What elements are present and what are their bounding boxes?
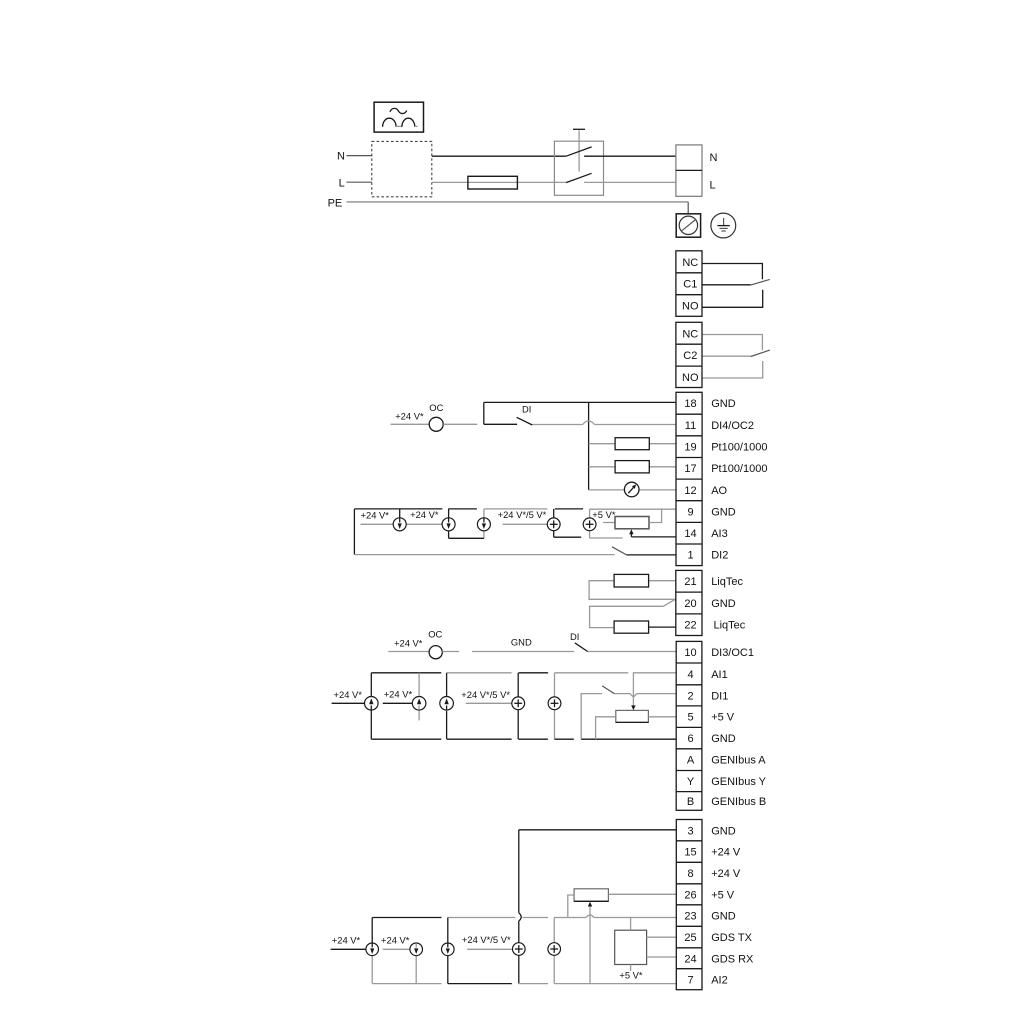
svg-text:22: 22 <box>684 620 696 632</box>
svg-text:Pt100/1000: Pt100/1000 <box>711 442 767 454</box>
svg-text:L: L <box>710 180 716 192</box>
svg-text:GND: GND <box>711 825 736 837</box>
svg-text:+5 V: +5 V <box>711 712 735 724</box>
svg-text:12: 12 <box>684 485 696 497</box>
svg-text:DI2: DI2 <box>711 550 728 562</box>
svg-text:25: 25 <box>684 932 696 944</box>
svg-text:DI: DI <box>522 403 531 414</box>
svg-text:+24 V*/5 V*: +24 V*/5 V* <box>498 509 547 520</box>
svg-text:24: 24 <box>684 953 696 965</box>
svg-text:Y: Y <box>687 776 695 788</box>
svg-text:DI4/OC2: DI4/OC2 <box>711 420 754 432</box>
svg-text:N: N <box>337 150 345 162</box>
svg-text:14: 14 <box>684 528 696 540</box>
svg-text:+24 V*: +24 V* <box>395 410 424 421</box>
svg-text:B: B <box>687 796 694 808</box>
svg-text:+24 V: +24 V <box>711 847 741 859</box>
svg-text:23: 23 <box>684 911 696 923</box>
svg-text:A: A <box>687 755 695 767</box>
svg-text:2: 2 <box>687 690 693 702</box>
svg-text:15: 15 <box>684 847 696 859</box>
svg-text:Pt100/1000: Pt100/1000 <box>711 463 767 475</box>
svg-text:GDS RX: GDS RX <box>711 953 754 965</box>
svg-text:19: 19 <box>684 442 696 454</box>
svg-text:+24 V: +24 V <box>711 868 741 880</box>
svg-text:L: L <box>339 177 345 189</box>
svg-text:+24 V*/5 V*: +24 V*/5 V* <box>461 689 510 700</box>
svg-text:26: 26 <box>684 889 696 901</box>
svg-text:+24 V*: +24 V* <box>381 935 410 946</box>
svg-text:+5 V: +5 V <box>711 889 735 901</box>
svg-text:+5 V*: +5 V* <box>592 509 616 520</box>
svg-text:18: 18 <box>684 398 696 410</box>
svg-text:GDS TX: GDS TX <box>711 932 752 944</box>
svg-text:6: 6 <box>687 733 693 745</box>
svg-text:17: 17 <box>684 463 696 475</box>
svg-text:+24 V*: +24 V* <box>384 688 413 699</box>
svg-text:AI1: AI1 <box>711 669 728 681</box>
svg-text:DI3/OC1: DI3/OC1 <box>711 647 754 659</box>
svg-text:8: 8 <box>687 868 693 880</box>
svg-text:NO: NO <box>682 301 699 313</box>
svg-text:+24 V*: +24 V* <box>334 689 363 700</box>
svg-text:NO: NO <box>682 372 699 384</box>
svg-text:GENIbus B: GENIbus B <box>711 796 766 808</box>
svg-text:AO: AO <box>711 485 727 497</box>
svg-text:AI3: AI3 <box>711 528 728 540</box>
svg-text:GND: GND <box>711 911 736 923</box>
svg-text:GND: GND <box>511 637 532 648</box>
svg-text:+24 V*/5 V*: +24 V*/5 V* <box>462 934 511 945</box>
svg-text:GND: GND <box>711 398 736 410</box>
svg-text:GND: GND <box>711 733 736 745</box>
svg-text:C1: C1 <box>683 279 697 291</box>
svg-text:+24 V*: +24 V* <box>394 637 423 648</box>
svg-text:4: 4 <box>687 669 693 681</box>
svg-text:DI: DI <box>570 631 579 642</box>
svg-text:LiqTec: LiqTec <box>714 620 746 632</box>
svg-text:N: N <box>710 152 718 164</box>
svg-text:AI2: AI2 <box>711 974 728 986</box>
svg-text:9: 9 <box>687 507 693 519</box>
svg-text:GENIbus A: GENIbus A <box>711 755 766 767</box>
svg-text:3: 3 <box>687 825 693 837</box>
svg-text:5: 5 <box>687 712 693 724</box>
svg-text:NC: NC <box>682 257 698 269</box>
svg-text:GND: GND <box>711 598 736 610</box>
svg-text:+24 V*: +24 V* <box>361 510 390 521</box>
svg-text:OC: OC <box>429 402 443 413</box>
svg-text:21: 21 <box>684 576 696 588</box>
svg-text:OC: OC <box>428 628 442 639</box>
svg-text:10: 10 <box>684 647 696 659</box>
svg-text:LiqTec: LiqTec <box>711 576 743 588</box>
svg-text:20: 20 <box>684 598 696 610</box>
svg-text:PE: PE <box>328 197 343 209</box>
svg-text:+24 V*: +24 V* <box>332 935 361 946</box>
svg-text:GND: GND <box>711 507 736 519</box>
svg-text:7: 7 <box>687 974 693 986</box>
svg-text:1: 1 <box>687 550 693 562</box>
svg-text:C2: C2 <box>683 350 697 362</box>
svg-text:+5 V*: +5 V* <box>619 970 643 981</box>
svg-text:NC: NC <box>682 328 698 340</box>
svg-text:11: 11 <box>685 420 696 432</box>
svg-text:+24 V*: +24 V* <box>410 509 439 520</box>
svg-text:DI1: DI1 <box>711 690 728 702</box>
svg-text:GENIbus Y: GENIbus Y <box>711 776 766 788</box>
